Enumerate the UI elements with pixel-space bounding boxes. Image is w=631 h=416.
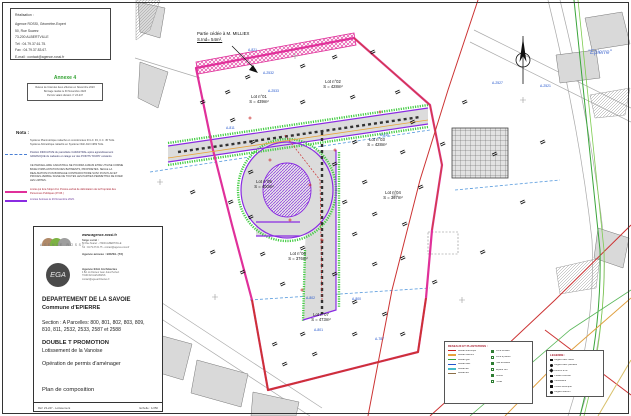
- blue-line-swatch: [448, 364, 456, 366]
- lot-label-05: Lot n°05S = 400m²: [241, 179, 287, 190]
- gate-icon: [491, 380, 495, 384]
- nota-bornage-note: Limites bornées le 29 Novembre 2023.: [30, 198, 126, 202]
- lot-label-04: Lot n°04S = 367m²: [370, 190, 416, 201]
- scale-label: Echelle : 1/250: [139, 406, 158, 410]
- parcel-label: A-811: [226, 126, 235, 130]
- ega-address: 4 Bd. du Docteur Jean Jules Herbert 7310…: [82, 272, 119, 282]
- agency-annexe: Agence annexe : BOZEL (73): [82, 252, 123, 256]
- agence-rossi-logo-icon: [42, 233, 66, 251]
- orange-line-swatch: [448, 354, 456, 356]
- ega-logo-icon: EGA: [46, 263, 70, 287]
- lot-label-06: Lot n°06S = 376m²: [275, 251, 321, 262]
- realisation-title: Réalisation :: [15, 12, 106, 18]
- lot-label-02: Lot n°02S = 428m²: [310, 79, 356, 90]
- nota-geo-note: Système Planimétrique rattaché en coordo…: [30, 139, 126, 147]
- legend-title: LEGENDE :: [550, 353, 600, 357]
- parcel-label: A-821: [248, 48, 257, 52]
- pv-limit-swatch: [5, 191, 27, 193]
- nota-pv-note: Limite qui fera l'objet d'un Procès-verb…: [30, 188, 126, 196]
- drawing-sheet: Partie cédée à M. MILLIEX S.Ind= 54m². "…: [0, 0, 631, 416]
- lot-label-03: Lot n°03S = 428m²: [354, 137, 400, 148]
- document-title: Plan de composition: [42, 387, 94, 393]
- brown-line-swatch: [448, 373, 456, 375]
- green-space-icon: [491, 368, 495, 372]
- lot-label-01: Lot n°01S = 439m²: [236, 94, 282, 105]
- annexe-box: Relevé de l'état des lieux effectué en N…: [27, 83, 103, 101]
- parcel-label: A-787: [375, 337, 384, 341]
- parcel-label: A-2533: [268, 89, 279, 93]
- north-arrow-icon: [516, 36, 530, 84]
- storm-drain-icon: [550, 364, 553, 367]
- manhole-icon: [550, 359, 553, 362]
- hydrant-icon: [550, 375, 553, 378]
- annexe-title: Annexe 4: [28, 75, 102, 81]
- lot-label-07: Lot n°07S = 473m²: [298, 312, 344, 323]
- nota-cadastre-note: Position INDICATIVE du parcellaire CADAS…: [30, 151, 126, 159]
- realisation-box: Réalisation : Agence ROSSI, Géomètre-Exp…: [10, 8, 111, 60]
- legend-symbols: LEGENDE : Regard eaux usées Regard eaux …: [546, 350, 604, 397]
- cession-annotation: Partie cédée à M. MILLIEX S.Ind= 54m².: [197, 31, 249, 42]
- project-name: Lotissement de la Vanoise: [42, 348, 102, 354]
- legend-networks-plantations: RESEAUX ET PLANTATIONS : Réseau électriq…: [444, 341, 533, 404]
- parcel-label: A-801: [314, 328, 323, 332]
- cyan-line-swatch: [448, 368, 456, 370]
- parcel-label: A-2532: [263, 71, 274, 75]
- title-block: AGENCE ROSSI www.agence-rossi.fr Siège s…: [33, 226, 163, 412]
- tree-icon: [491, 350, 495, 354]
- section-line2: 810, 811, 2532, 2533, 2587 et 2588: [42, 327, 121, 333]
- valve-icon: [549, 369, 553, 373]
- parcel-label: A-2521: [540, 84, 551, 88]
- telecom-manhole-icon: [550, 391, 553, 394]
- green-line-swatch: [448, 359, 456, 361]
- ega-title: Agence EGA Architectes: [82, 267, 117, 271]
- parcel-label: A-802: [306, 296, 315, 300]
- commune-title: Commune d'EPIERRE: [42, 305, 100, 311]
- cession-line1: Partie cédée à M. MILLIEX: [197, 31, 249, 37]
- legend-title: RESEAUX ET PLANTATIONS :: [448, 344, 529, 348]
- electric-box-icon: [550, 385, 553, 388]
- agence-rossi-name: AGENCE ROSSI: [40, 243, 85, 247]
- departement-title: DEPARTEMENT DE LA SAVOIE: [42, 297, 131, 303]
- place-label-epierre: "Epierre": [588, 50, 612, 56]
- streetlight-icon: [550, 380, 553, 383]
- cession-line2: S.Ind= 54m².: [197, 37, 249, 43]
- reference-strip: Réf: 23-247 - Lotissement Echelle : 1/25…: [34, 402, 162, 411]
- nota-warning: CE PARCELLAIRE CADASTRAL NE POURRA JAMAI…: [30, 164, 126, 183]
- reference-number: Réf: 23-247 - Lotissement: [38, 406, 70, 410]
- client-name: DOUBLE T PROMOTION: [42, 340, 109, 346]
- red-line-swatch: [448, 350, 456, 352]
- parcel-label: A-810: [380, 133, 389, 137]
- agency-website: www.agence-rossi.fr: [82, 233, 117, 237]
- tree-planted-icon: [491, 356, 495, 360]
- hedge-icon: [491, 362, 495, 366]
- siege-label: Siège social :: [82, 239, 99, 242]
- fence-icon: [491, 374, 495, 378]
- parcel-label: A-2527: [492, 81, 503, 85]
- operation-name: Opération de permis d'aménager: [42, 361, 121, 367]
- parcel-label: A-800: [352, 297, 361, 301]
- section-line1: Section : A Parcelles: 800, 801, 802, 80…: [42, 320, 145, 326]
- bornage-limit-swatch: [5, 200, 27, 202]
- cadastral-limit-swatch: [5, 154, 27, 155]
- nota-title: Nota :: [16, 130, 29, 135]
